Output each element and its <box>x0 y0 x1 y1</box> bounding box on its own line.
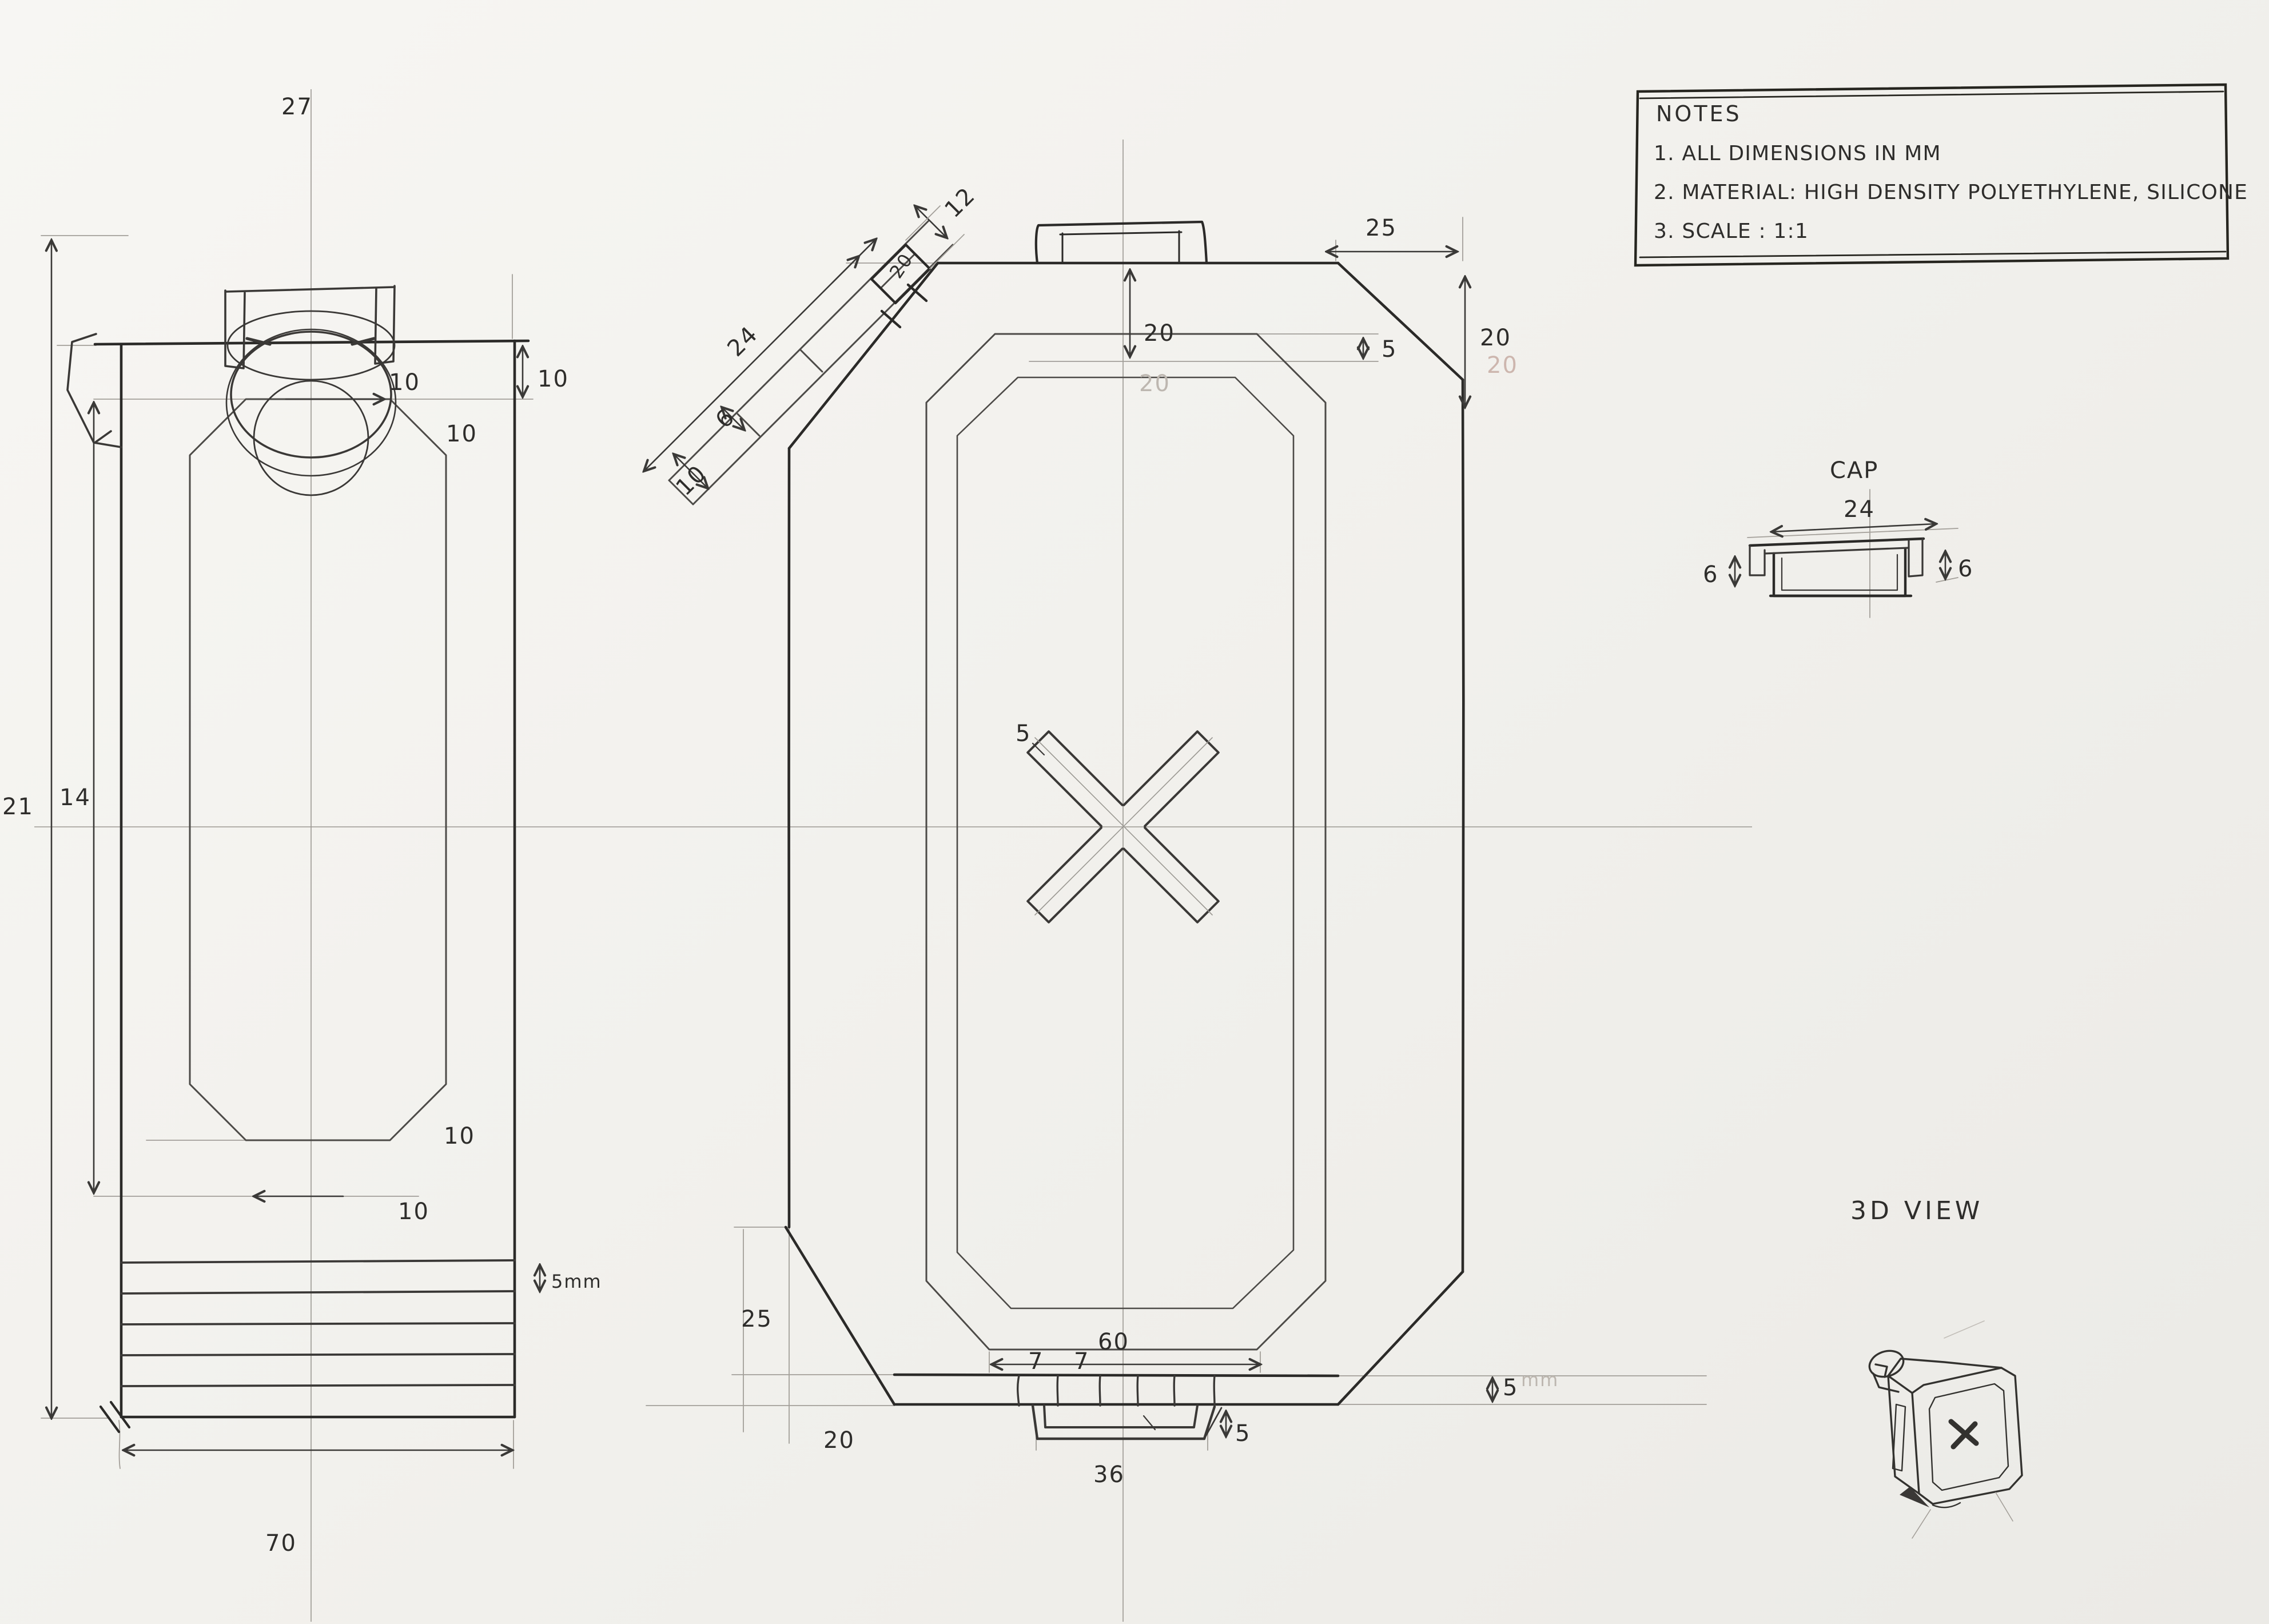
notes-box: NOTES 1. ALL DIMENSIONS IN MM 2. MATERIA… <box>1635 85 2248 265</box>
dim-spout-depth: 20 <box>885 249 918 282</box>
notes-item-1: 1. ALL DIMENSIONS IN MM <box>1654 142 1941 165</box>
technical-drawing: 27 10 10 10 21 14 10 10 5mm 70 <box>0 0 2269 1624</box>
dim-spout-tip: 10 <box>671 460 711 501</box>
notes-title: NOTES <box>1656 101 1742 126</box>
dim-tr-chamfer-h-faint: 20 <box>1487 352 1518 379</box>
dim-bl-chamfer-h: 20 <box>823 1427 855 1454</box>
dim-spout-mouth: 12 <box>940 182 980 223</box>
front-view: 20 20 5 25 20 20 5 60 7 7 25 20 36 5 5 m… <box>646 215 1706 1488</box>
cap-dim-height-right: 6 <box>1958 556 1973 582</box>
dim-spout-width: 6 <box>711 404 741 433</box>
dim-overall-height: 21 <box>2 794 34 820</box>
dim-boss-seg-b: 7 <box>1074 1348 1089 1375</box>
dim-chamfer-bottom-v: 10 <box>444 1123 475 1149</box>
dim-tr-chamfer-w: 25 <box>1366 215 1397 241</box>
cap-dim-width: 24 <box>1844 496 1875 523</box>
iso-view: 3D VIEW <box>1850 1196 2022 1538</box>
dim-boss-seg-a: 7 <box>1028 1348 1044 1375</box>
side-view: 27 10 10 10 21 14 10 10 5mm 70 <box>2 94 602 1557</box>
dim-panel-height: 14 <box>59 785 91 811</box>
drawing-sheet: 27 10 10 10 21 14 10 10 5mm 70 <box>0 0 2269 1624</box>
dim-boss-width: 36 <box>1093 1462 1125 1488</box>
dim-top-gap: 10 <box>538 366 569 392</box>
dim-top-wall: 5 <box>1382 336 1397 363</box>
dim-tr-chamfer-h: 20 <box>1480 325 1511 351</box>
dim-bl-chamfer-v: 25 <box>741 1306 773 1332</box>
dim-x-arm-width: 5 <box>1016 721 1031 747</box>
dim-base-width: 70 <box>265 1530 297 1557</box>
dim-base-step: 5 <box>1503 1375 1518 1401</box>
dim-cap-width: 27 <box>281 94 313 120</box>
cap-dim-height-left: 6 <box>1703 562 1718 588</box>
cap-detail: CAP 24 6 6 <box>1703 457 1973 618</box>
notes-item-2: 2. MATERIAL: HIGH DENSITY POLYETHYLENE, … <box>1654 181 2248 204</box>
notes-item-3: 3. SCALE : 1:1 <box>1654 220 1809 243</box>
dim-top-inset-faint: 20 <box>1139 371 1171 397</box>
cap-detail-title: CAP <box>1830 457 1878 484</box>
dim-panel-bottom-width: 60 <box>1098 1329 1129 1355</box>
dim-chamfer-top-v: 10 <box>446 421 477 447</box>
dim-rib-spacing: 5mm <box>551 1271 602 1292</box>
spout-detail: 24 6 10 12 20 <box>644 182 981 504</box>
dim-boss-height: 5 <box>1235 1420 1251 1447</box>
dim-chamfer-top-h: 10 <box>389 369 420 396</box>
dim-top-inset: 20 <box>1144 320 1175 347</box>
dim-base-step-unit: mm <box>1521 1369 1559 1391</box>
dim-chamfer-bottom-h: 10 <box>398 1199 429 1225</box>
iso-view-title: 3D VIEW <box>1850 1196 1983 1225</box>
dim-spout-length: 24 <box>722 321 763 361</box>
